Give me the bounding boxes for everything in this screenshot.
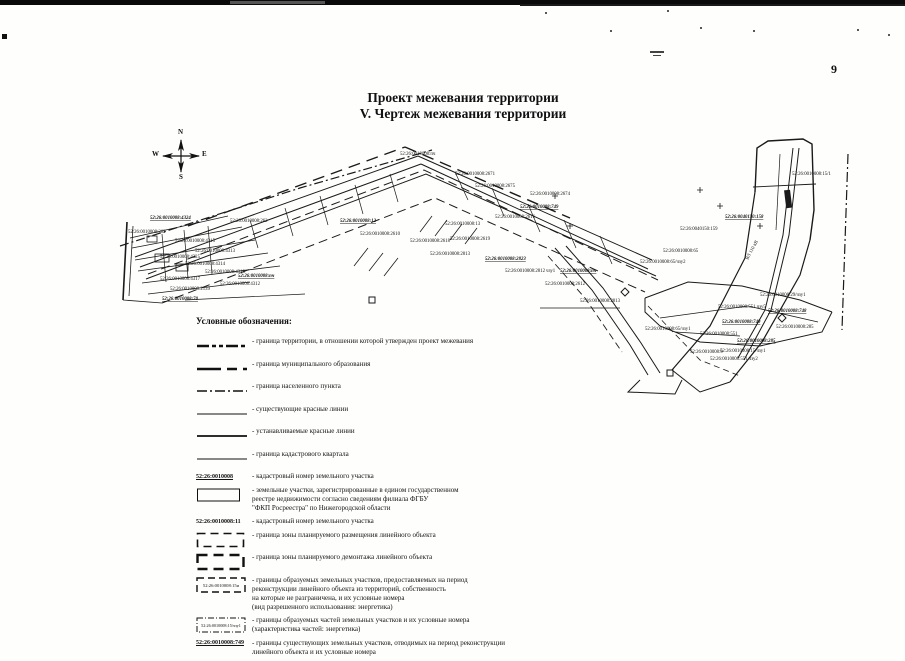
parcel-label: 52:26:0010008:пч [560,269,597,274]
legend-item: - граница зоны планируемого демонтажа ли… [196,553,676,571]
parcel-label: 52:26:0010008:4324 [150,216,191,221]
scan-speck [667,10,669,12]
legend-text-line: - граница населенного пункта [252,382,341,391]
legend-text-line: - границы образуемых земельных участков,… [252,576,468,585]
map-line [129,226,133,296]
legend-symbol-cell: 52:26:0010008:15/чзу1 [196,616,252,634]
map-marker-plus [757,223,763,229]
legend-item: 52:26:0010008:15и- границы образуемых зе… [196,576,676,612]
legend-symbol: 52:26:0010008:15и [196,576,248,594]
legend-symbol-cell [196,450,252,468]
parcel-label: 52:26:0010008:285 [776,325,814,330]
legend-item: - земельные участки, зарегистрированные … [196,486,676,513]
parcel-label: 52:26:0010008:551 чзу5 [718,305,766,310]
legend-text-line: - граница зоны планируемого демонтажа ли… [252,553,432,562]
legend-item-text: - существующие красные линии [252,405,348,414]
map-marker-plus [717,203,723,209]
parcel-label: 52:26:0010008:15/1 [792,172,832,177]
legend-symbol-cell [196,405,252,423]
scan-speck [610,30,612,32]
map-marker-square [369,297,375,303]
legend-symbol-label: 52:26:0010008 [196,474,233,480]
parcel-label: 52:26:0010008:пч [238,274,275,279]
legend-item: 52:26:0010008:11- кадастровый номер земе… [196,517,676,526]
map-line [384,258,398,276]
legend-item-text: - граница муниципального образования [252,360,370,369]
map-line [672,370,730,392]
parcel-label: 52:26:0010008:551 чзу2 [710,357,758,362]
legend-text-line: "ФКП Росреестра" по Нижегородской област… [252,504,459,513]
parcel-label: 52:26:0010008:2610 [360,232,401,237]
legend-text-line: (характеристика частей: энергетика) [252,625,469,634]
legend-item-text: - граница зоны планируемого размещения л… [252,531,436,540]
legend-text-line: реестре недвижимости согласно сведениям … [252,495,459,504]
parcel-label: 52:26:0010008:2619 [450,237,491,242]
legend-symbol-cell: 52:26:0010008:15и [196,576,252,594]
title-line-1: Проект межевания территории [263,90,663,106]
legend: Условные обозначения: - граница территор… [196,316,676,661]
parcel-label: 52:26:0010008:13 [445,222,481,227]
legend-item-text: - граница кадастрового квартала [252,450,349,459]
legend-symbol-cell [196,360,252,378]
page-number: 9 [831,62,837,77]
scan-speck [857,29,859,31]
legend-text-line: - кадастровый номер земельного участка [252,472,374,481]
scan-speck [888,34,890,36]
legend-symbol-cell: 52:26:0010008:11 [196,517,252,526]
parcel-label: 52:26:0010008:2612 [545,282,586,287]
map-line [354,248,368,266]
parcel-label: 52:26:0010008:4312 [220,282,261,287]
map-line [842,154,848,330]
legend-item-text: - граница зоны планируемого демонтажа ли… [252,553,432,562]
parcel-label: 52:26:0010008:748 [768,309,807,314]
legend-symbol [196,382,248,400]
map-line [320,196,328,225]
legend-symbol-cell [196,427,252,445]
map-marker-blob [784,190,792,209]
parcel-label: 52:26:0010008:4325 [160,255,201,260]
legend-text-line: - граница муниципального образования [252,360,370,369]
parcel-label: 52:26:0010008:262 [128,230,166,235]
legend-item: - граница муниципального образования [196,360,676,378]
parcel-label: 52:26:0010008:2823 [485,257,526,262]
parcel-label: 52:26:0010008:4313 [195,249,236,254]
map-line [390,174,398,202]
parcel-label: 52:26:0010008:2671 [455,172,496,177]
legend-item: 52:26:0010008:749- границы существующих … [196,639,676,657]
parcel-label: 52:26:0010008:4315 [175,239,216,244]
legend-item: - граница зоны планируемого размещения л… [196,531,676,549]
legend-item-text: - границы образуемых частей земельных уч… [252,616,469,634]
legend-text-line: - устанавливаемые красные линии [252,427,355,436]
legend-symbol [196,337,248,355]
legend-symbol [196,531,248,549]
legend-item-text: - граница населенного пункта [252,382,341,391]
legend-text-line: - кадастровый номер земельного участка [252,517,374,526]
parcel-label: 52:26:0010008:262 [230,219,268,224]
parcel-label: 52:26:0010008:65 [663,249,699,254]
parcel-label: 52:26:0010008:9 [690,350,723,355]
legend-item-text: - устанавливаемые красные линии [252,427,355,436]
parcel-label: 52:26:0010008:2675 [475,184,516,189]
parcel-label: 52:26:0010008:551 [700,332,738,337]
legend-text-line: - граница кадастрового квартала [252,450,349,459]
legend-symbol-cell [196,486,252,504]
parcel-label: 52:26:0010008:пч [400,152,436,157]
scan-artifact-band [230,1,325,4]
scan-speck [545,12,547,14]
legend-text-line: - земельные участки, зарегистрированные … [252,486,459,495]
map-marker-diamond [778,314,786,322]
legend-symbol-label: 52:26:0010008:749 [196,640,244,646]
legend-item-text: - границы существующих земельных участко… [252,639,505,657]
legend-text-line: - существующие красные линии [252,405,348,414]
parcel-label: 52:26:0040150:159 [680,227,718,232]
scan-speck [700,27,702,29]
map-line [369,253,383,271]
legend-symbol [196,486,248,504]
scan-artifact-band [520,4,905,6]
legend-symbol-cell: 52:26:0010008 [196,472,252,481]
map-marker-plus [567,223,573,229]
legend-item: 52:26:0010008- кадастровый номер земельн… [196,472,676,481]
legend-symbol [196,450,248,468]
legend-item: - существующие красные линии [196,405,676,423]
parcel-label: 52:26:0010008:2616 [495,215,536,220]
parcel-label: 52:26:0010008:285 [737,339,776,344]
legend-symbol-cell [196,382,252,400]
parcel-label: 52:26:0010008:15/чзу1 [720,349,766,354]
legend-symbol [196,553,248,571]
legend-symbol-label: 52:26:0010008:15и [203,583,240,588]
parcel-label: 52:26:0010008:2674 [530,192,571,197]
legend-item-text: - кадастровый номер земельного участка [252,517,374,526]
legend-item: - граница территории, в отношении которо… [196,337,676,355]
parcel-label: 52:26:0010008:749 [520,205,559,210]
legend-text-line: - граница территории, в отношении которо… [252,337,473,346]
map-marker-plus [697,187,703,193]
map-line [753,184,816,187]
legend-text-line: реконструкции линейного объекта из терри… [252,585,468,594]
parcel-label: 52:26:0010008:2813 [580,299,621,304]
legend-item-text: - граница территории, в отношении которо… [252,337,473,346]
legend-symbol-cell [196,531,252,549]
legend-item: - граница кадастрового квартала [196,450,676,468]
legend-symbol-label: 52:26:0010008:11 [196,519,241,525]
map-line [185,294,305,300]
parcel-label: 52:26:0010008:4314 [185,262,226,267]
parcel-label: 52:26:0010008:2618 [410,239,451,244]
scan-artifact-mark [2,34,7,39]
legend-text-line: (вид разрешенного использования: энергет… [252,603,468,612]
parcel-label: 52:26:0010008:2139 [170,287,211,292]
parcel-label: 52:26:0010008:29/чзу1 [760,293,806,298]
legend-item-text: - земельные участки, зарегистрированные … [252,486,459,513]
legend-symbol-cell [196,553,252,571]
legend-items: - граница территории, в отношении которо… [196,337,676,657]
legend-item-text: - кадастровый номер земельного участка [252,472,374,481]
parcel-label: 52:26:0010008:65/чзу2 [640,260,686,265]
legend-symbol-label: 52:26:0010008:15/чзу1 [201,623,241,628]
legend-symbol: 52:26:0010008:15/чзу1 [196,616,248,634]
document-title: Проект межевания территории V. Чертеж ме… [263,90,663,122]
scan-speck [753,30,755,32]
legend-text-line: линейного объекта и их условные номера [252,648,505,657]
legend-symbol [196,427,248,445]
map-marker-diamond [621,288,629,296]
legend-text-line: на которые не разграничена, и их условны… [252,594,468,603]
legend-heading: Условные обозначения: [196,316,676,326]
map-line [355,185,363,214]
title-line-2: V. Чертеж межевания территории [263,106,663,122]
legend-symbol-cell [196,337,252,355]
map-line [600,236,612,264]
map-line [776,154,780,230]
parcel-label: 52:26:0010008:2813 [430,252,471,257]
parcel-label: 52:26:0010008:2812 чзу1 [505,269,556,274]
parcel-label: 52:26:0010008:70 [162,297,199,302]
parcel-label: 52:26:0010008:749 [722,320,761,325]
map-line [123,222,127,300]
parcel-label: 52:26:0010008:4317 [160,277,201,282]
legend-item: - граница населенного пункта [196,382,676,400]
legend-item: 52:26:0010008:15/чзу1- границы образуемы… [196,616,676,634]
legend-text-line: - граница зоны планируемого размещения л… [252,531,436,540]
map-line [420,216,432,232]
parcel-label: 52:26:0010008:12 [340,219,377,224]
scan-smudge [650,51,664,57]
parcel-label: 52:26:0040150:158 [725,215,764,220]
legend-text-line: - границы образуемых частей земельных уч… [252,616,469,625]
legend-item-text: - границы образуемых земельных участков,… [252,576,468,612]
legend-symbol [196,360,248,378]
legend-symbol [196,405,248,423]
legend-item: - устанавливаемые красные линии [196,427,676,445]
map-line [123,300,162,303]
